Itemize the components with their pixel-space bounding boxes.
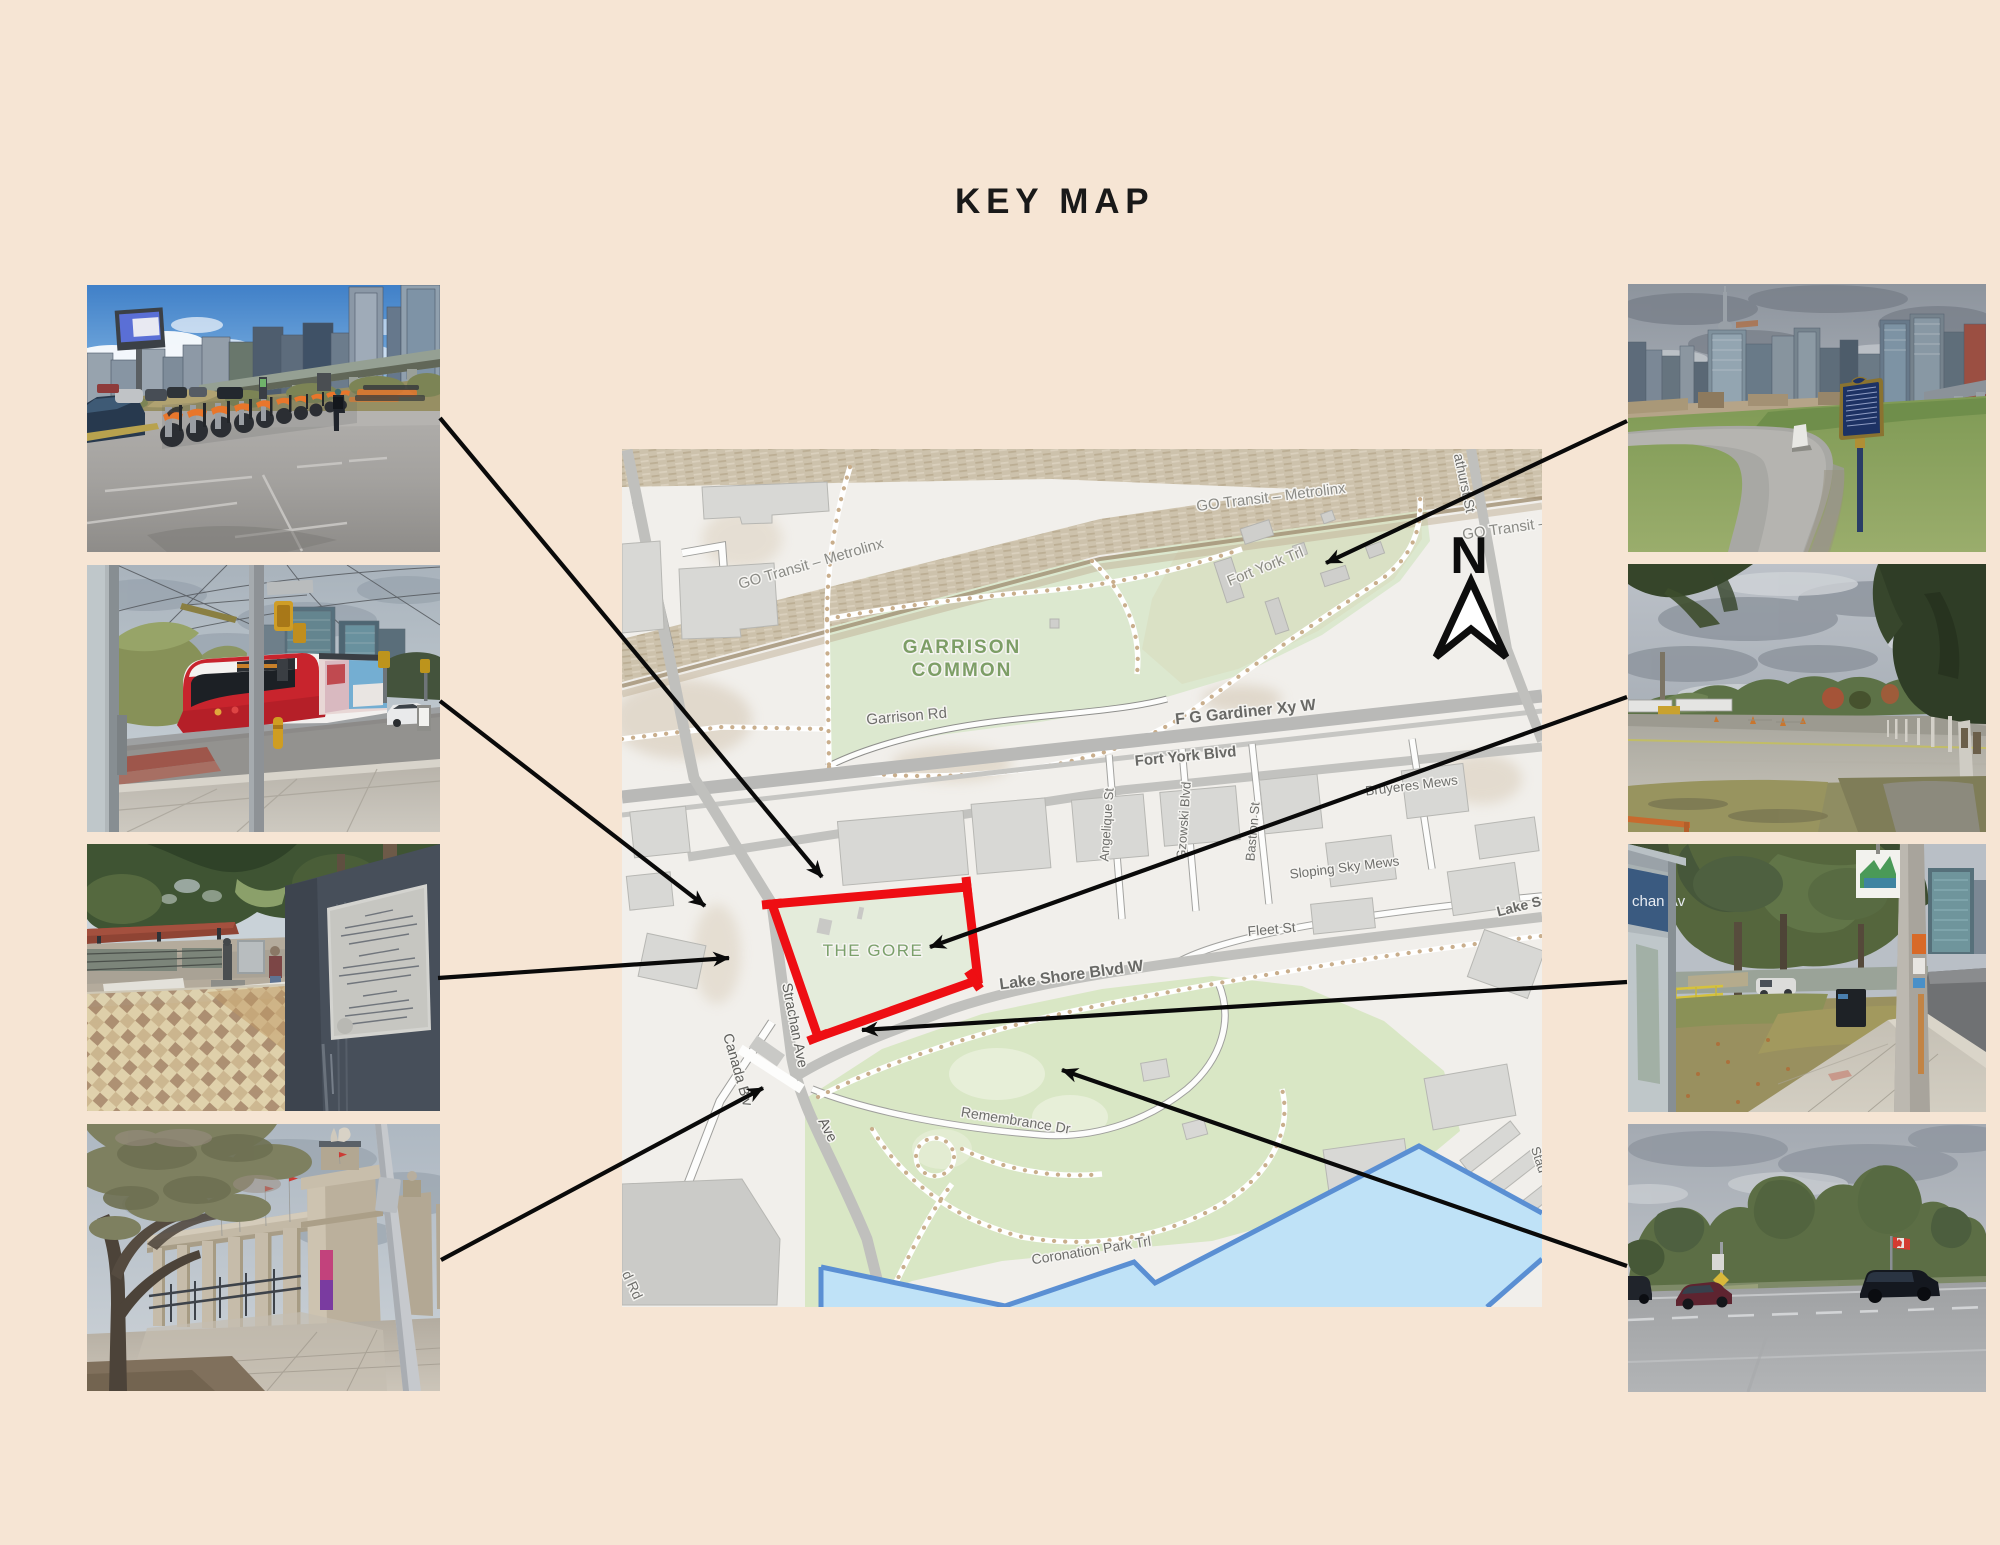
svg-text:COMMON: COMMON [912, 660, 1013, 681]
svg-text:chan Av: chan Av [1632, 893, 1686, 910]
svg-text:GARRISON: GARRISON [903, 637, 1021, 658]
svg-text:THE GORE: THE GORE [823, 941, 924, 960]
svg-text:N: N [1450, 527, 1488, 585]
